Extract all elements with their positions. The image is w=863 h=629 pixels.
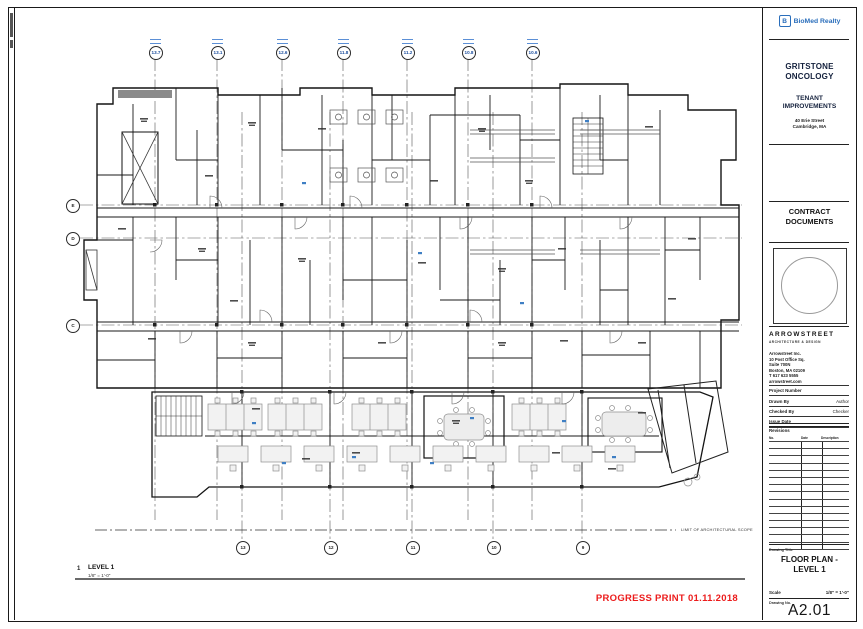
revision-cell <box>823 528 849 534</box>
divider <box>769 544 849 545</box>
dimension-text-mark <box>212 39 223 44</box>
grid-bubble-13: 13 <box>236 541 250 555</box>
dimension-text-mark <box>277 39 288 44</box>
grid-bubble-13.7: 13.7 <box>149 46 163 60</box>
drawing-number: A2.01 <box>763 602 856 620</box>
dimension-text-mark <box>150 39 161 44</box>
grid-bubble-E: E <box>66 199 80 213</box>
revision-cell <box>823 485 849 491</box>
drawing-title: FLOOR PLAN - LEVEL 1 <box>775 555 844 576</box>
grid-bubble-11.2: 11.2 <box>401 46 415 60</box>
revision-cell <box>823 464 849 470</box>
dimension-text-mark <box>402 39 413 44</box>
project-phase: CONTRACT DOCUMENTS <box>773 207 846 226</box>
revision-cell <box>769 514 802 520</box>
revision-cell <box>823 514 849 520</box>
project-name: TENANT IMPROVEMENTS <box>777 95 842 111</box>
grid-bubble-C: C <box>66 319 80 333</box>
revision-cell <box>823 478 849 484</box>
grid-bubble-10: 10 <box>487 541 501 555</box>
grid-bubble-10.6: 10.6 <box>526 46 540 60</box>
revision-cell <box>769 464 802 470</box>
revision-column-header: Date <box>801 436 821 440</box>
revision-row <box>769 528 849 535</box>
revision-cell <box>802 471 823 477</box>
revision-cell <box>823 521 849 527</box>
biomed-realty-logo: B BioMed Realty <box>763 15 856 27</box>
divider <box>769 423 849 427</box>
revision-cell <box>823 456 849 462</box>
revision-cell <box>769 485 802 491</box>
grid-bubble-11.8: 11.8 <box>337 46 351 60</box>
revision-cell <box>769 521 802 527</box>
client-name: GRITSTONE ONCOLOGY <box>763 62 856 82</box>
revision-cell <box>769 500 802 506</box>
project-info-rows: Project NumberDrawn ByAuthorChecked ByCh… <box>769 385 849 428</box>
divider <box>769 201 849 202</box>
biomed-logo-icon: B <box>779 15 791 27</box>
architect-address-line: Arrowstreet Inc. <box>769 351 805 357</box>
revision-cell <box>802 521 823 527</box>
revision-cell <box>769 535 802 541</box>
info-value: Author <box>836 399 849 404</box>
divider <box>769 326 849 327</box>
revision-cell <box>769 507 802 513</box>
divider <box>769 144 849 145</box>
revision-cell <box>802 535 823 541</box>
grid-bubble-10.8: 10.8 <box>462 46 476 60</box>
dimension-text-mark <box>463 39 474 44</box>
revisions-header: No.DateDescription <box>769 435 849 440</box>
info-value: Checker <box>833 409 849 414</box>
brand-name: BioMed Realty <box>794 18 841 25</box>
revision-row <box>769 456 849 463</box>
revision-cell <box>802 500 823 506</box>
titleblock-info-row: Project Number <box>769 385 849 396</box>
title-block: B BioMed Realty GRITSTONE ONCOLOGY TENAN… <box>763 8 856 619</box>
revisions-label: Revisions <box>769 428 790 433</box>
divider <box>769 242 849 243</box>
revision-row <box>769 471 849 478</box>
professional-stamp-area <box>773 248 847 324</box>
dimension-text-mark <box>527 39 538 44</box>
revision-cell <box>769 442 802 448</box>
architect-address: Arrowstreet Inc.10 Post Office Sq.Suite … <box>769 351 805 384</box>
revision-cell <box>802 492 823 498</box>
drawing-title-label: Drawing Title <box>769 548 793 552</box>
revision-cell <box>769 478 802 484</box>
dimension-text-mark <box>338 39 349 44</box>
grid-bubble-12.6: 12.6 <box>276 46 290 60</box>
revision-cell <box>802 514 823 520</box>
grid-bubble-9: 9 <box>576 541 590 555</box>
revision-cell <box>769 492 802 498</box>
info-label: Project Number <box>769 388 802 393</box>
view-title: LEVEL 1 <box>88 564 114 571</box>
revision-cell <box>823 449 849 455</box>
grid-bubble-layer: 13.713.112.611.811.210.810.6131211109EDC <box>0 0 863 629</box>
revision-row <box>769 500 849 507</box>
grid-bubble-11: 11 <box>406 541 420 555</box>
titleblock-info-row: Drawn ByAuthor <box>769 396 849 406</box>
revision-cell <box>802 464 823 470</box>
revision-cell <box>802 507 823 513</box>
revision-row <box>769 521 849 528</box>
divider <box>769 39 849 40</box>
revision-cell <box>769 456 802 462</box>
architect-address-line: arrowstreet.com <box>769 379 805 385</box>
progress-print-stamp: PROGRESS PRINT 01.11.2018 <box>518 593 738 604</box>
scale-label: Scale <box>769 590 781 595</box>
revision-cell <box>769 471 802 477</box>
drawing-sheet: 13.713.112.611.811.210.810.6131211109EDC… <box>0 0 863 629</box>
revision-cell <box>802 528 823 534</box>
revision-cell <box>769 449 802 455</box>
revision-cell <box>802 456 823 462</box>
architect-name: ARROWSTREET <box>769 331 834 338</box>
view-number: 1 <box>77 566 80 572</box>
scale-row: Scale 1/8" = 1'-0" <box>769 590 849 595</box>
revision-row <box>769 485 849 492</box>
scope-limit-note: LIMIT OF ARCHITECTURAL SCOPE <box>681 527 753 532</box>
revision-cell <box>823 535 849 541</box>
revision-row <box>769 507 849 514</box>
grid-bubble-12: 12 <box>324 541 338 555</box>
revision-column-header: No. <box>769 436 801 440</box>
revision-row <box>769 492 849 499</box>
revision-row <box>769 464 849 471</box>
revision-row <box>769 535 849 542</box>
revision-cell <box>802 485 823 491</box>
divider <box>769 598 849 599</box>
info-label: Checked By <box>769 409 794 414</box>
titleblock-info-row: Checked ByChecker <box>769 407 849 417</box>
revision-cell <box>823 507 849 513</box>
revisions-table <box>769 441 849 550</box>
revision-cell <box>823 500 849 506</box>
scale-value: 1/8" = 1'-0" <box>826 590 849 595</box>
stamp-circle <box>781 257 838 314</box>
revision-row <box>769 449 849 456</box>
revision-cell <box>823 492 849 498</box>
architect-tagline: ARCHITECTURE & DESIGN <box>769 340 821 344</box>
revision-cell <box>823 442 849 448</box>
revision-cell <box>802 442 823 448</box>
revision-cell <box>802 449 823 455</box>
view-scale: 1/8" = 1'-0" <box>88 573 110 578</box>
revision-column-header: Description <box>821 436 849 440</box>
revision-row <box>769 478 849 485</box>
revision-cell <box>802 478 823 484</box>
grid-bubble-D: D <box>66 232 80 246</box>
revision-cell <box>769 528 802 534</box>
info-label: Drawn By <box>769 399 789 404</box>
revision-row <box>769 514 849 521</box>
revision-row <box>769 442 849 449</box>
project-address: 40 Erie Street Cambridge, MA <box>763 118 856 130</box>
address-line: Cambridge, MA <box>763 124 856 130</box>
revision-cell <box>823 471 849 477</box>
grid-bubble-13.1: 13.1 <box>211 46 225 60</box>
